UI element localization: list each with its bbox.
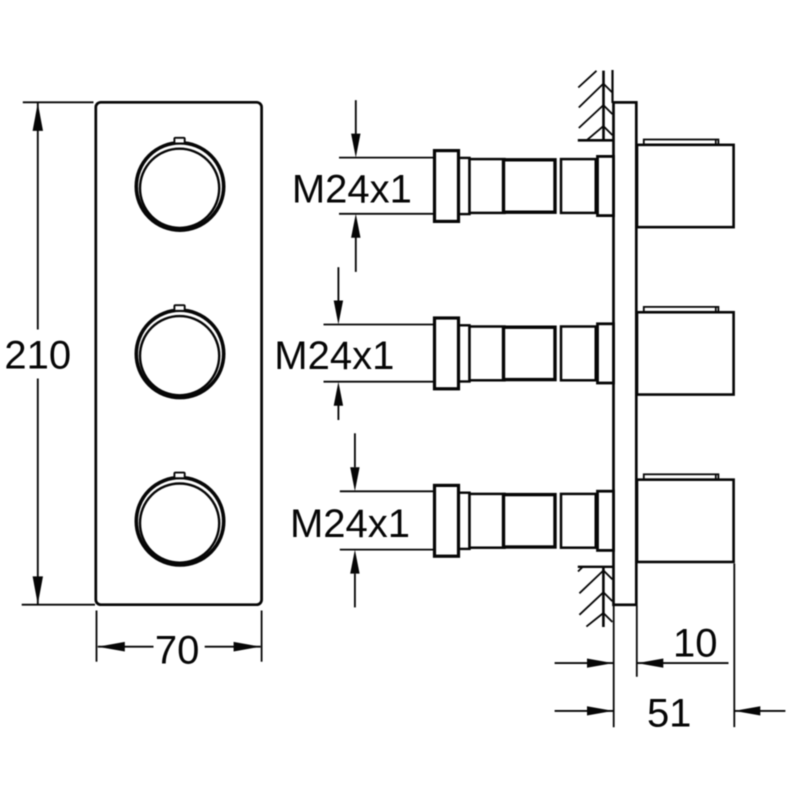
svg-text:210: 210 — [4, 333, 71, 377]
svg-text:51: 51 — [647, 691, 692, 735]
svg-text:M24x1: M24x1 — [292, 167, 412, 211]
svg-text:M24x1: M24x1 — [290, 502, 410, 546]
svg-text:M24x1: M24x1 — [274, 334, 394, 378]
svg-text:10: 10 — [673, 621, 718, 665]
svg-text:70: 70 — [155, 628, 200, 672]
